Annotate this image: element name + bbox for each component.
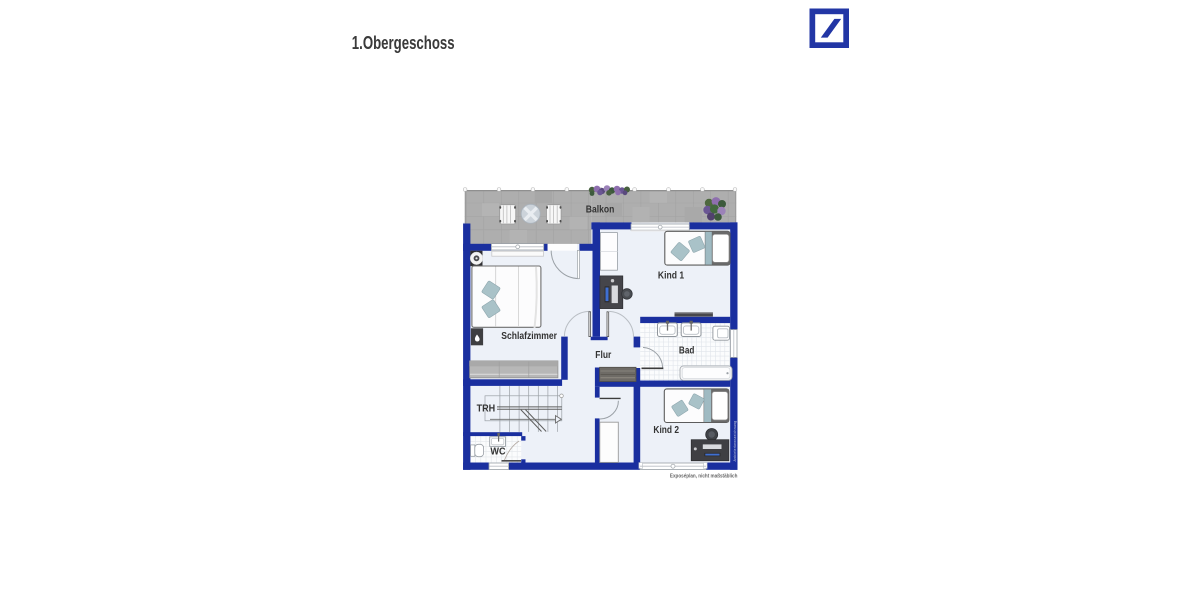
svg-text:Exposéplan, nicht maßstäblich: Exposéplan, nicht maßstäblich — [670, 473, 738, 479]
svg-text:Flur: Flur — [595, 350, 611, 361]
svg-text:TRH: TRH — [477, 403, 496, 414]
svg-text:Balkon: Balkon — [586, 205, 615, 216]
svg-text:Kind 1: Kind 1 — [658, 270, 684, 281]
svg-text:Schlafzimmer: Schlafzimmer — [501, 331, 557, 342]
svg-text:Kind 2: Kind 2 — [653, 425, 679, 436]
svg-text:WC: WC — [490, 447, 505, 458]
svg-text:Bad: Bad — [679, 346, 695, 357]
svg-text:1.Obergeschoss: 1.Obergeschoss — [352, 32, 455, 53]
svg-text:Anbieterkennzeichnung: Anbieterkennzeichnung — [733, 421, 737, 462]
